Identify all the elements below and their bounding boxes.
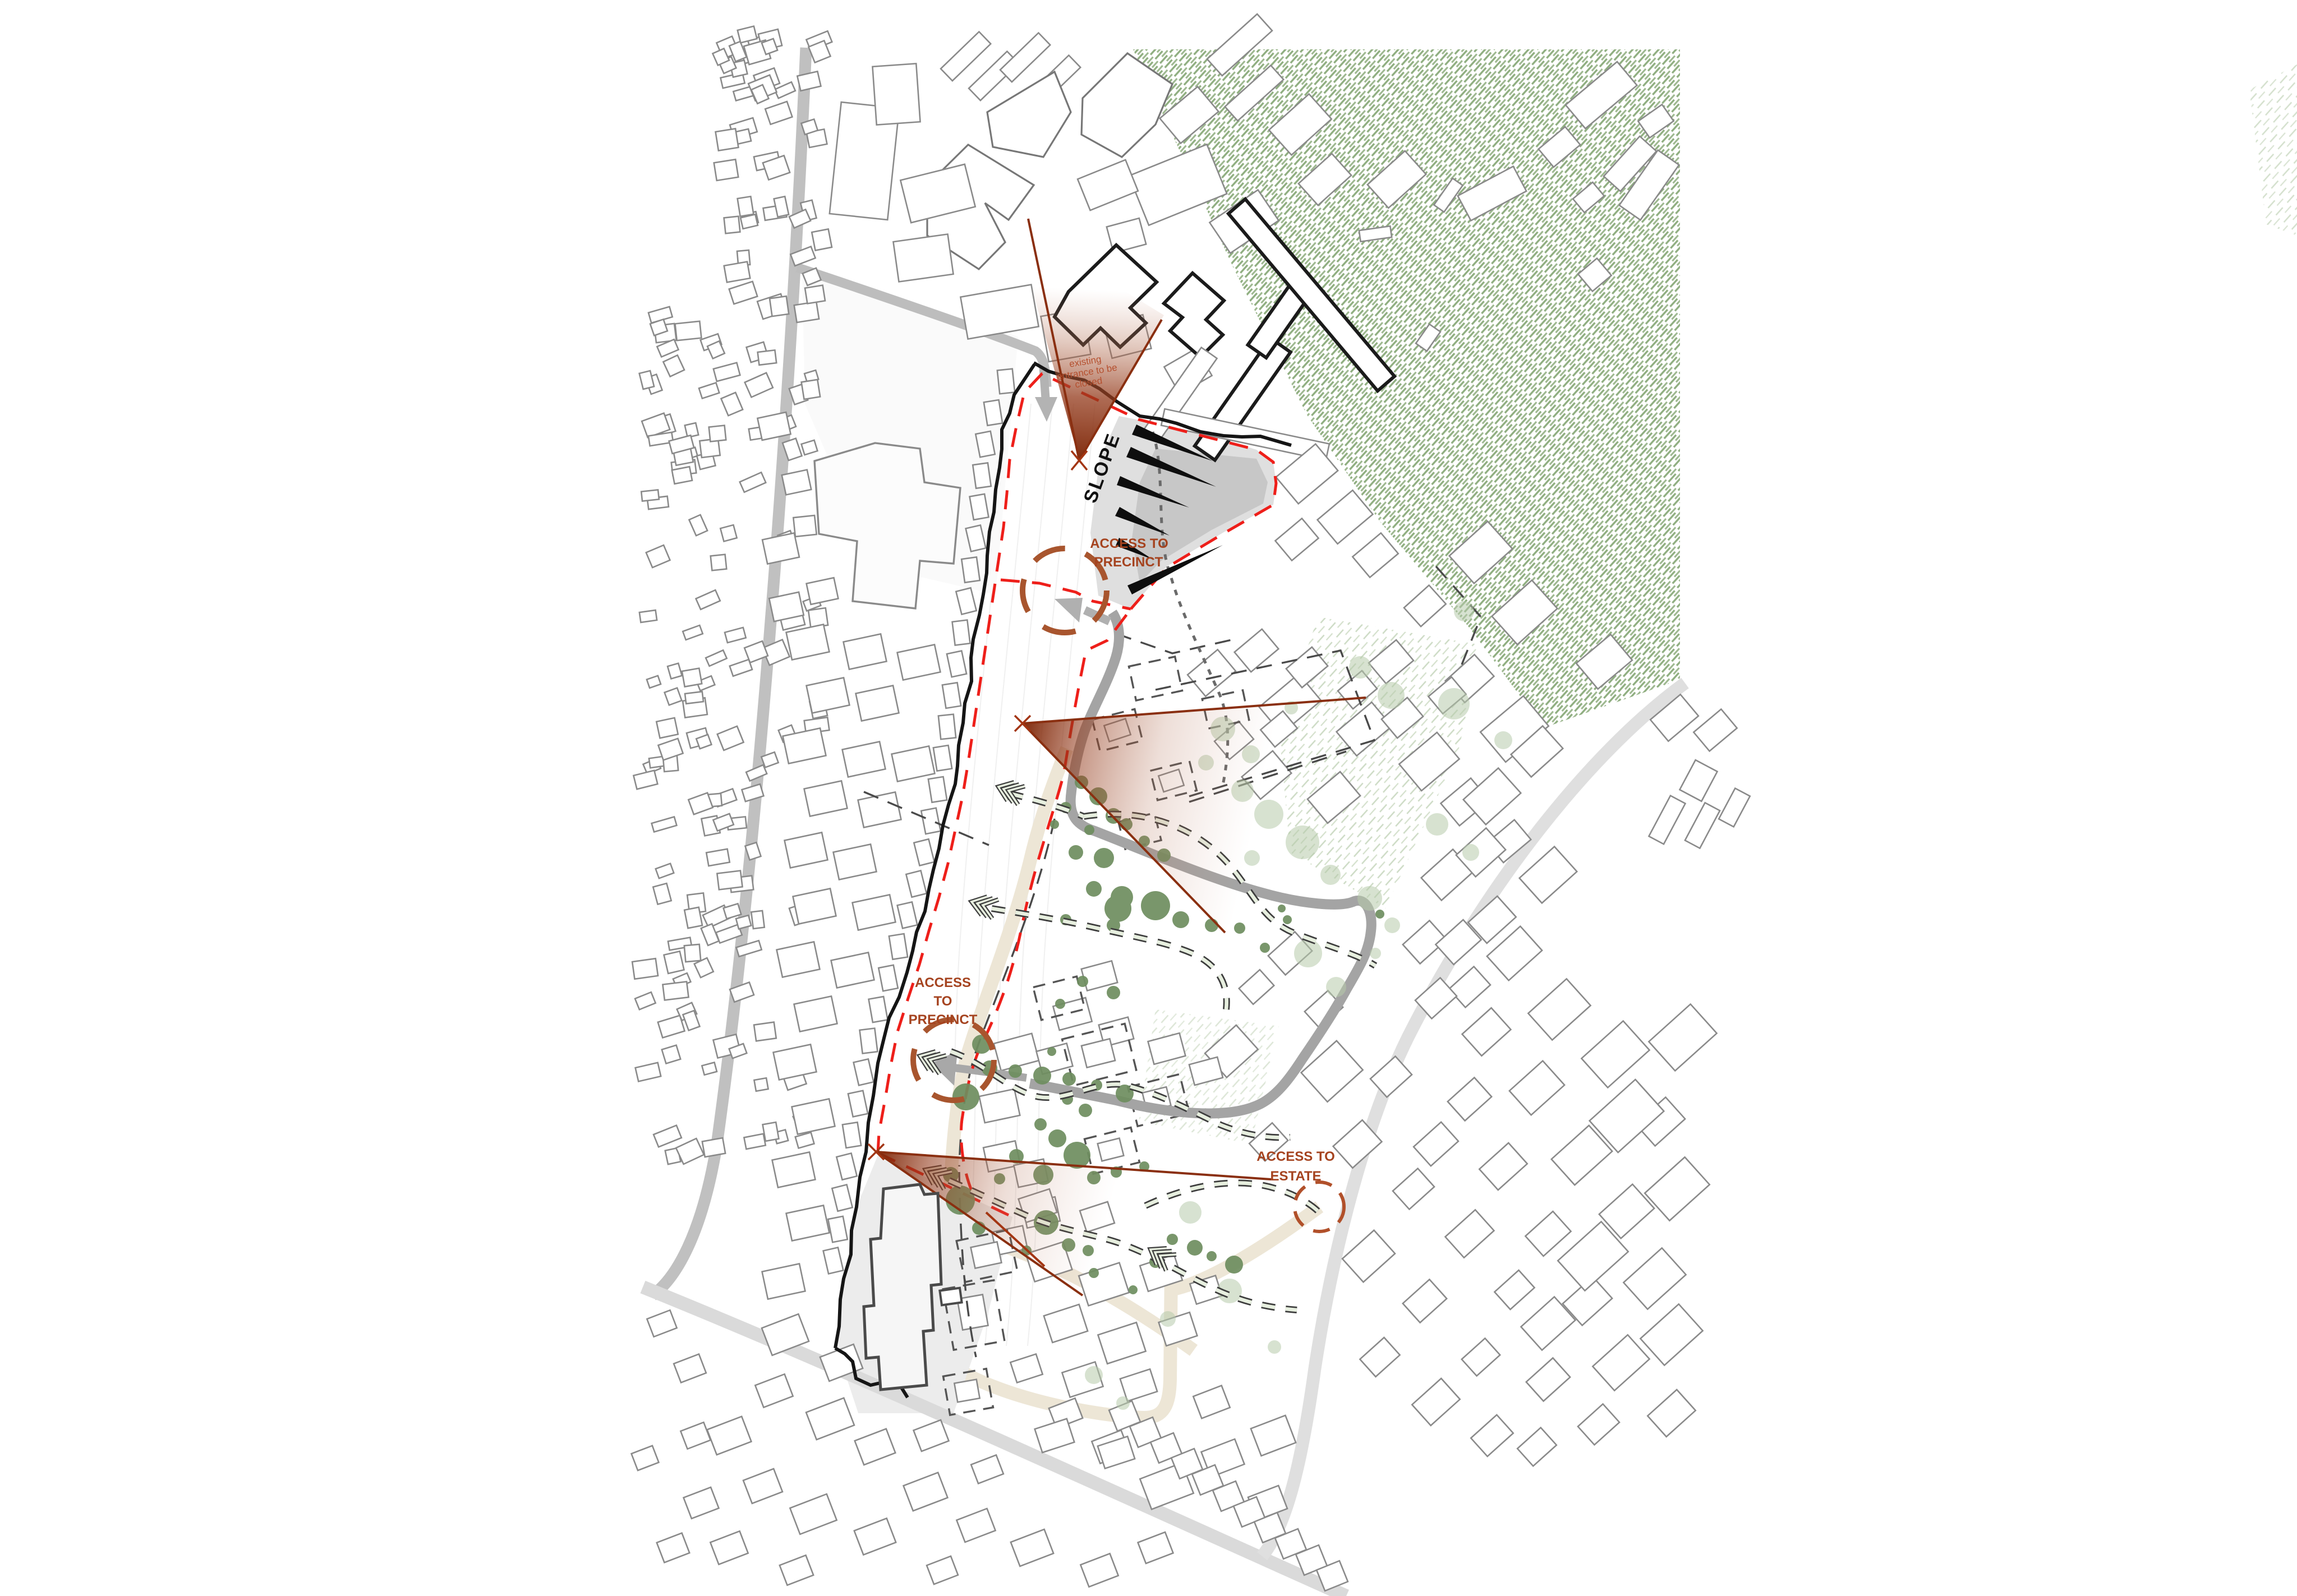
- svg-text:ACCESS TO: ACCESS TO: [1256, 1149, 1335, 1164]
- svg-text:PRECINCT: PRECINCT: [909, 1012, 978, 1027]
- svg-text:ACCESS TO: ACCESS TO: [1090, 536, 1168, 551]
- svg-text:TO: TO: [934, 994, 952, 1009]
- svg-text:PRECINCT: PRECINCT: [1094, 555, 1163, 570]
- svg-text:ESTATE: ESTATE: [1270, 1169, 1321, 1184]
- svg-text:ACCESS: ACCESS: [915, 975, 971, 990]
